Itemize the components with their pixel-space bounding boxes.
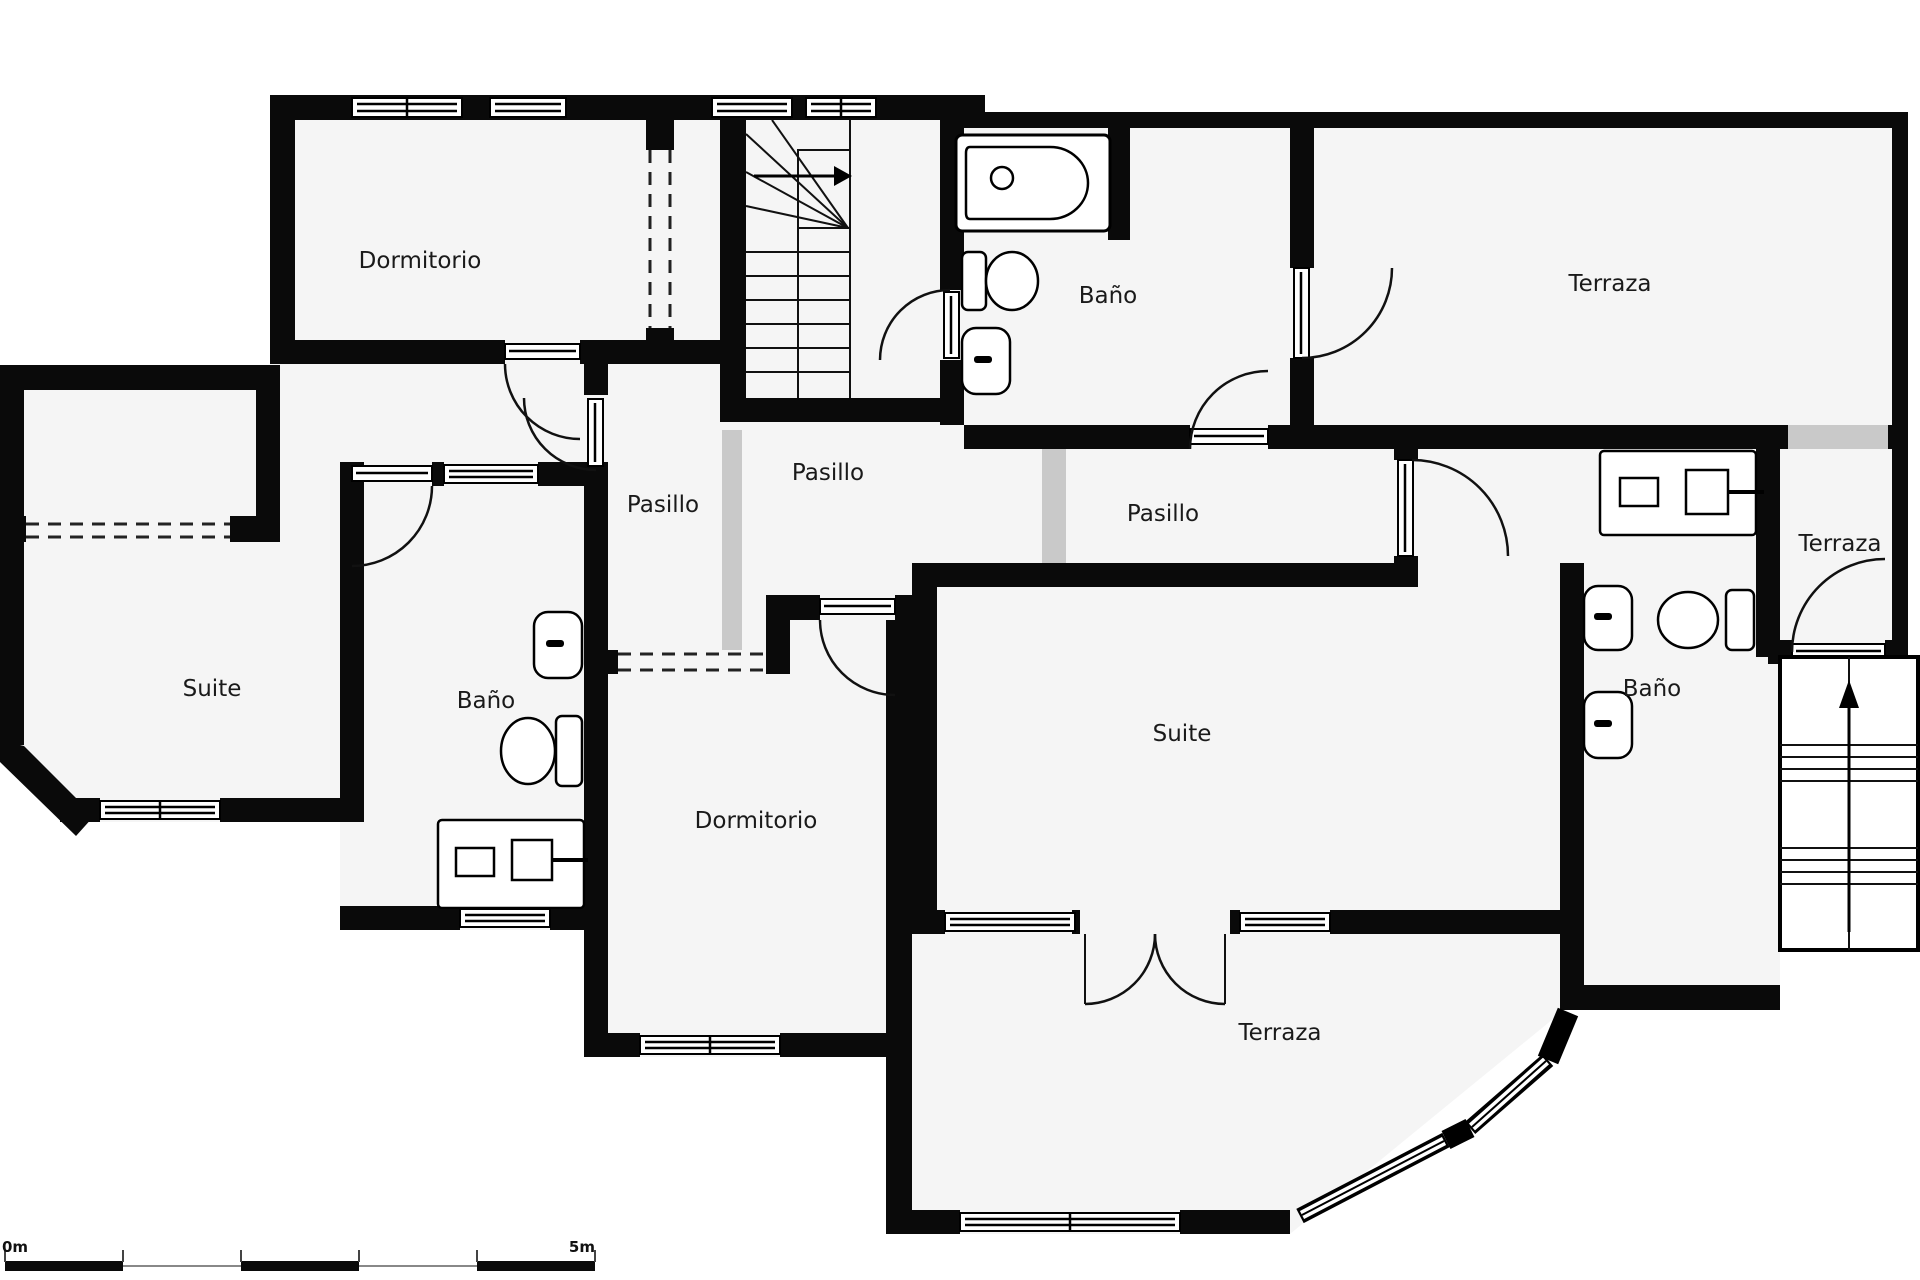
sink-counter xyxy=(438,820,588,908)
window xyxy=(460,909,550,927)
window xyxy=(712,98,792,117)
window xyxy=(352,98,462,117)
bidet xyxy=(1584,586,1632,650)
toilet xyxy=(962,252,1038,310)
room-label-terraza-right: Terraza xyxy=(1797,531,1881,557)
window xyxy=(1240,913,1330,931)
room-label-dormitorio-nw: Dormitorio xyxy=(359,248,482,274)
room-label-dormitorio-center: Dormitorio xyxy=(695,808,818,834)
room-label-bano-left: Baño xyxy=(457,688,516,714)
toilet xyxy=(1658,590,1754,650)
room-label-pasillo-right: Pasillo xyxy=(1127,501,1199,527)
room-label-pasillo-left: Pasillo xyxy=(627,492,699,518)
toilet xyxy=(501,716,582,786)
room-label-bano-top: Baño xyxy=(1079,283,1138,309)
window xyxy=(806,98,876,117)
window xyxy=(640,1036,780,1054)
room-label-pasillo-center: Pasillo xyxy=(792,460,864,486)
bidet xyxy=(534,612,582,678)
room-label-suite-right: Suite xyxy=(1153,721,1212,747)
bidet xyxy=(962,328,1010,394)
window xyxy=(945,913,1075,931)
room-label-suite-left: Suite xyxy=(183,676,242,702)
scale-end-label: 5m xyxy=(569,1238,595,1256)
window xyxy=(490,98,566,117)
stairs-exterior xyxy=(1780,657,1918,950)
floor-plan-page: Dormitorio Baño Terraza Pasillo Pasillo … xyxy=(0,0,1920,1280)
window xyxy=(444,465,538,483)
window xyxy=(960,1213,1180,1231)
floor-plan-canvas: Dormitorio Baño Terraza Pasillo Pasillo … xyxy=(0,0,1920,1280)
scale-bar: 0m 5m xyxy=(2,1238,595,1271)
room-label-bano-right: Baño xyxy=(1623,676,1682,702)
terrace-step-opening xyxy=(1788,425,1888,449)
bathtub xyxy=(956,135,1110,231)
sink-counter xyxy=(1600,451,1764,535)
window xyxy=(100,801,220,819)
room-label-terraza-top: Terraza xyxy=(1567,271,1651,297)
room-label-terraza-bottom: Terraza xyxy=(1237,1020,1321,1046)
scale-start-label: 0m xyxy=(2,1238,28,1256)
